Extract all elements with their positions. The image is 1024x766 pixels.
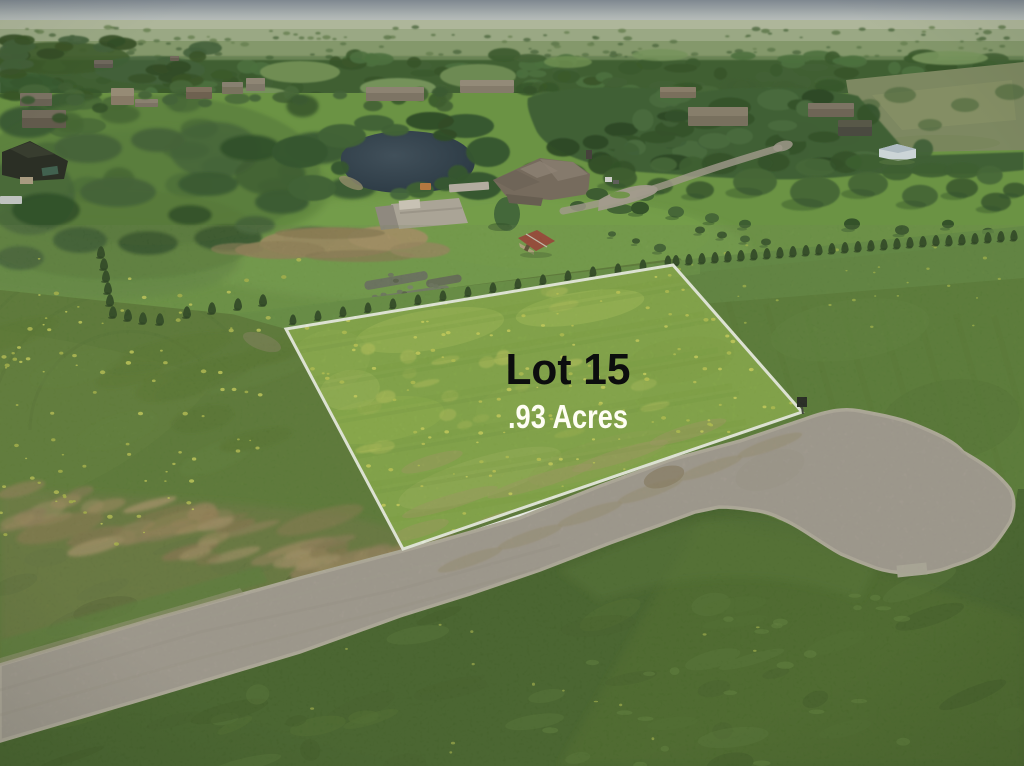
svg-text:.93 Acres: .93 Acres [508,398,628,435]
svg-text:Lot 15: Lot 15 [506,345,631,394]
